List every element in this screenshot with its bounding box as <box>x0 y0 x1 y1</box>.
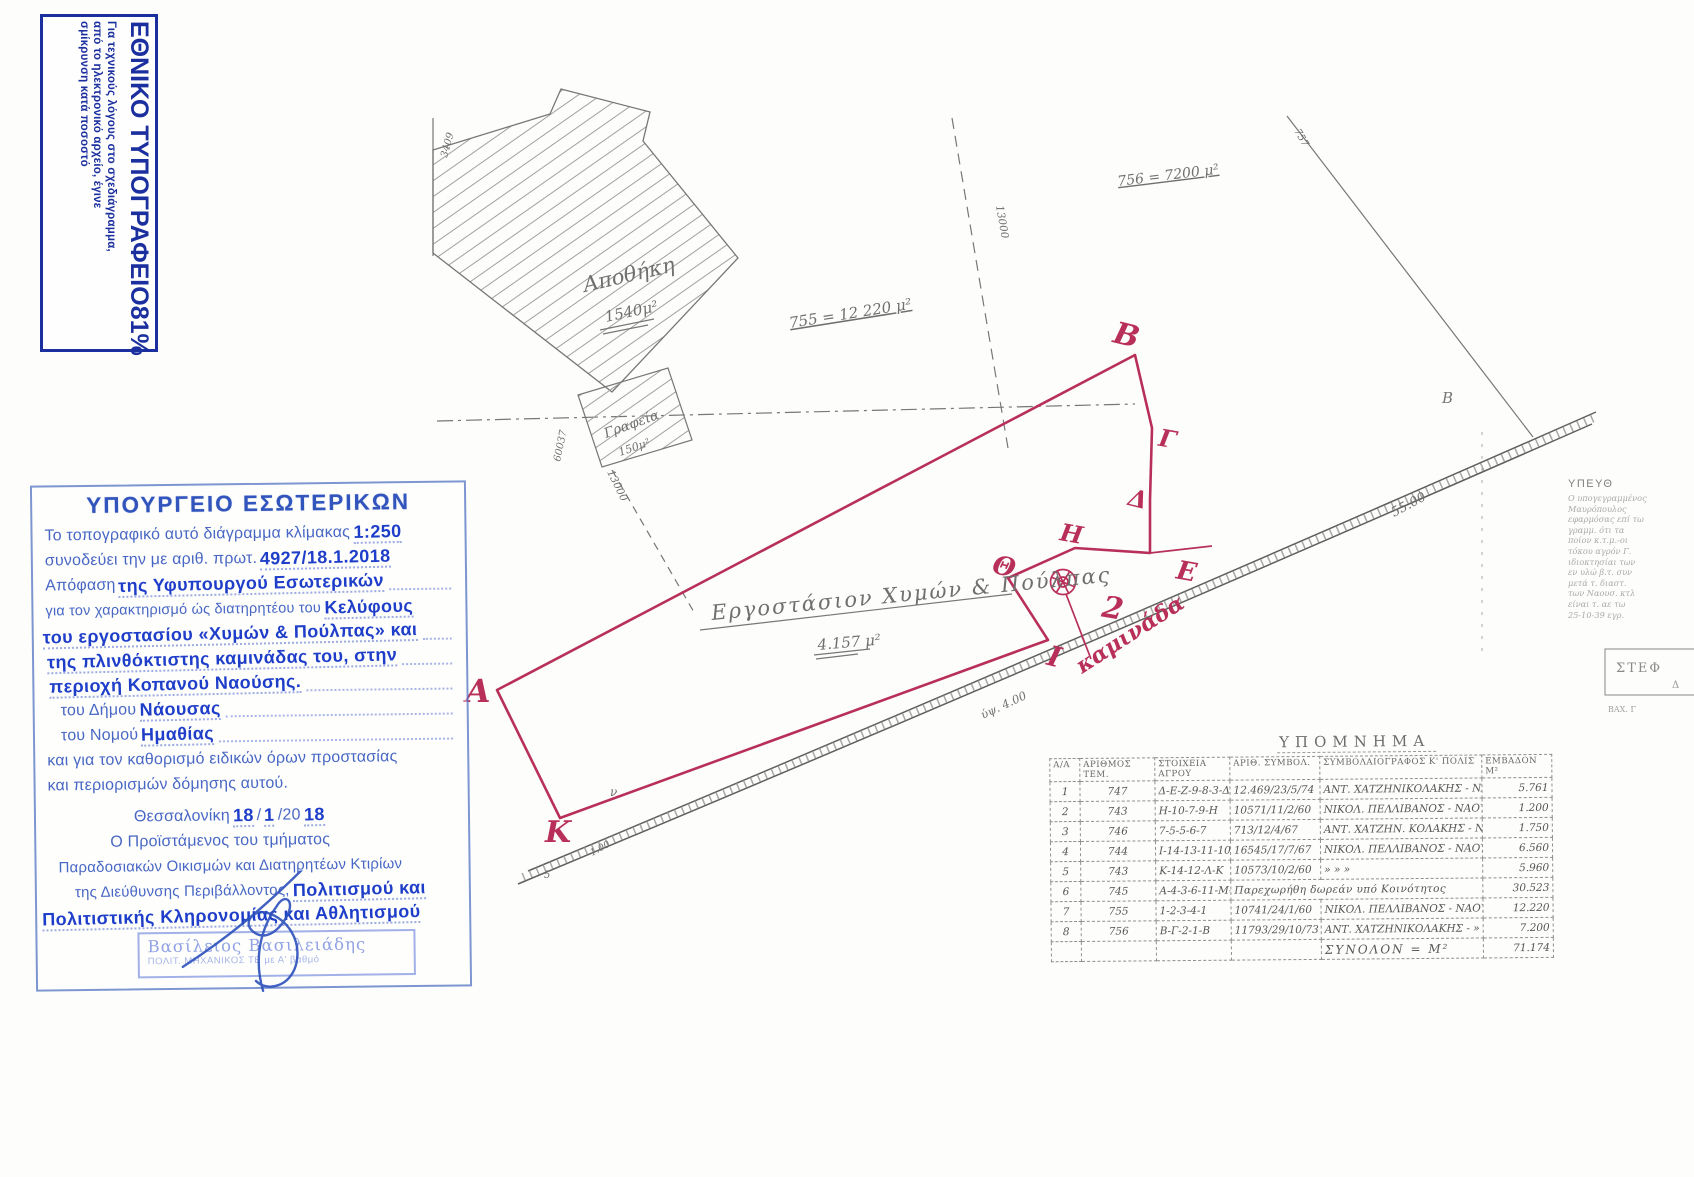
stamp-line-restrictions: και περιορισμών δόμησης αυτού. <box>47 773 288 798</box>
legend-table: Α/Α ΑΡΙΘΜΟΣ ΤΕΜ. ΣΤΟΙΧΕΙΑ ΑΓΡΟΥ ΑΡΙΘ. ΣΥ… <box>1049 754 1554 962</box>
surveyor-declaration: ΥΠΕΥΘ Ο υπογεγραμμένος Μαυρόπουλος εφαρμ… <box>1568 478 1694 620</box>
vertex-B: Β <box>1109 315 1143 355</box>
col-header-aa: Α/Α <box>1050 758 1080 781</box>
stamp-line-protection: και για τον καθορισμό ειδικών όρων προστ… <box>47 746 397 772</box>
dim-60037: 60037 <box>552 429 570 463</box>
mark-100: 1.00 <box>588 839 612 859</box>
date-day: 18 <box>233 805 254 827</box>
protocol-number: 4927/18.1.2018 <box>260 546 391 571</box>
warehouse-building: Αποθήκη 1540μ² <box>433 89 738 392</box>
date-year: 18 <box>303 804 324 826</box>
side-box-d: Δ <box>1672 680 1679 691</box>
decision-authority: της Υφυπουργού Εσωτερικών <box>118 570 384 598</box>
height-mark: ύψ. 4.00 <box>978 688 1028 721</box>
ministry-stamp-title: ΥΠΟΥΡΓΕΙΟ ΕΣΩΤΕΡΙΚΩΝ <box>44 489 452 520</box>
mark-5: 5 <box>544 870 550 881</box>
side-box-sub: ΒΑΧ. Γ <box>1608 705 1636 714</box>
national-printing-stamp: ΕΘΝΙΚΟ ΤΥΠΟΓΡΑΦΕΙΟ 81% Για τεχνικούς λόγ… <box>40 14 158 352</box>
stamp-line-characterization: για τον χαρακτηρισμό ώς διατηρητέου του <box>45 597 321 622</box>
label-2: 2 <box>1098 589 1126 627</box>
dim-13000-a: 13000 <box>993 204 1011 239</box>
stamp-line-scale: Το τοπογραφικό αυτό διάγραμμα κλίμακας <box>44 522 350 548</box>
stamp-line-head: Ο Προϊστάμενος του τμήματος <box>110 829 330 854</box>
total-value: 71.174 <box>1483 937 1553 958</box>
stamp-line-directorate: της Διεύθυνσης Περιβάλλοντος, <box>75 880 290 905</box>
prefecture-value: Ημαθίας <box>141 723 215 747</box>
side-box-label: ΣΤΕΦ <box>1616 661 1662 676</box>
vertex-D: Δ <box>1125 482 1151 515</box>
factory-label: Εργοστάσιον Χυμών & Πούλπας <box>709 563 1112 625</box>
np-stamp-title: ΕΘΝΙΚΟ ΤΥΠΟΓΡΑΦΕΙΟ <box>124 21 153 306</box>
hand-kelyfous: Κελύφους <box>324 596 413 620</box>
plot-757-label: 757 <box>1291 127 1310 150</box>
np-stamp-percent: 81% <box>124 306 153 356</box>
hand-chimney-line: της πλινθόκτιστης καμινάδας του, στην <box>47 644 398 674</box>
legend-table-block: ΥΠΟΜΝΗΜΑ Α/Α ΑΡΙΘΜΟΣ ΤΕΜ. ΣΤΟΙΧΕΙΑ ΑΓΡΟΥ… <box>1049 731 1563 962</box>
scanned-topographic-document: Αποθήκη 1540μ² Γραφεία 150μ² 755 = 12 22… <box>0 0 1694 1177</box>
vertex-K: Κ <box>544 815 573 850</box>
stamp-line-department: Παραδοσιακών Οικισμών και Διατηρητέων Κτ… <box>58 853 402 879</box>
plot-756-label: 756 = 7200 μ² <box>1117 162 1221 190</box>
stamp-line-municipality: του Δήμου <box>61 699 137 722</box>
declaration-heading: ΥΠΕΥΘ <box>1568 478 1694 490</box>
signature-box: Βασίλειος Βασιλειάδης ΠΟΛΙΤ. ΜΗΧΑΝΙΚΟΣ Τ… <box>137 929 416 978</box>
offices-building: Γραφεία 150μ² <box>578 368 692 467</box>
side-reference-box: ΣΤΕΦ Δ ΒΑΧ. Γ <box>1605 649 1694 714</box>
stamp-line-decision: Απόφαση <box>45 575 116 598</box>
legend-total-row: ΣΥΝΟΛΟΝ = Μ²71.174 <box>1051 937 1553 961</box>
ministry-stamp: ΥΠΟΥΡΓΕΙΟ ΕΣΩΤΕΡΙΚΩΝ Το τοπογραφικό αυτό… <box>30 480 472 991</box>
scale-value: 1:250 <box>353 521 402 544</box>
municipality-value: Νάουσας <box>139 698 221 722</box>
point-B-pencil: B <box>1441 389 1453 407</box>
legend-title: ΥΠΟΜΝΗΜΑ <box>1277 732 1436 753</box>
vertex-G: Γ <box>1156 423 1181 455</box>
hand-area-line: περιοχή Κοπανού Ναούσης. <box>49 671 301 699</box>
np-stamp-body: Για τεχνικούς λόγους στο σχεδιάγραμμα, α… <box>77 21 118 345</box>
hand-heritage-line: Πολιτιστικής Κληρονομίας και Αθλητισμού <box>42 901 421 932</box>
plot-755-label: 755 = 12 220 μ² <box>788 295 913 332</box>
col-header-parcel: ΑΡΙΘΜΟΣ ΤΕΜ. <box>1080 758 1155 782</box>
date-month: 1 <box>264 805 275 827</box>
col-header-notary: ΣΥΜΒΟΛΑΙΟΓΡΑΦΟΣ Κ' ΠΟΛΙΣ <box>1320 755 1482 779</box>
stamp-line-prefecture: του Νομού <box>61 724 139 747</box>
col-header-contract: ΑΡΙΘ. ΣΥΜΒΟΛ. <box>1230 756 1320 780</box>
stamp-city: Θεσσαλονίκη <box>134 805 230 828</box>
factory-area-label: 4.157 μ² <box>816 631 882 655</box>
total-label: ΣΥΝΟΛΟΝ = Μ² <box>1321 938 1483 959</box>
vertex-H: Η <box>1057 517 1087 550</box>
col-header-field: ΣΤΟΙΧΕΙΑ ΑΓΡΟΥ <box>1155 757 1230 781</box>
vertex-I: Ι <box>1043 639 1066 675</box>
dim-13000-b: 13000 <box>604 468 630 504</box>
col-header-area: ΕΜΒΑΔΟΝ Μ² <box>1482 754 1552 778</box>
stamp-line-protocol: συνοδεύει την με αριθ. πρωτ. <box>45 548 258 573</box>
declaration-body: Ο υπογεγραμμένος Μαυρόπουλος εφαρμόσας ε… <box>1568 493 1694 620</box>
signatory-role: ΠΟΛΙΤ. ΜΗΧΑΝΙΚΟΣ ΤΕ με Α' βαθμό <box>148 953 406 967</box>
hand-politismou: Πολιτισμού και <box>292 877 425 902</box>
vertex-E: Ε <box>1173 555 1200 588</box>
